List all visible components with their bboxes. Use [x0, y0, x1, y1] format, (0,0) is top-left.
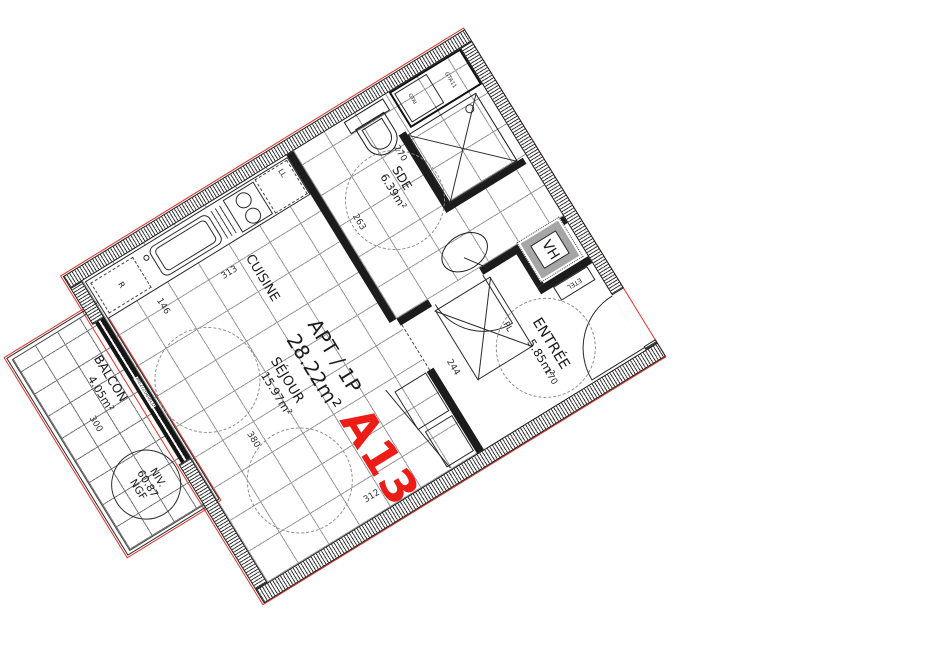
floor-plan-canvas: VH ETEL NIV. 60.87 NGF APT / 1P 28.22m² …: [0, 0, 931, 654]
